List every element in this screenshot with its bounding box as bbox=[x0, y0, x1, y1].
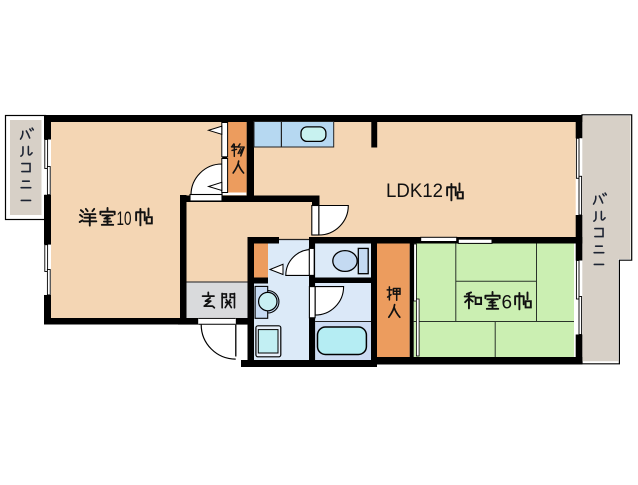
svg-text:6: 6 bbox=[502, 293, 513, 314]
svg-text:LDK12: LDK12 bbox=[386, 181, 443, 202]
svg-text:10: 10 bbox=[117, 209, 132, 230]
